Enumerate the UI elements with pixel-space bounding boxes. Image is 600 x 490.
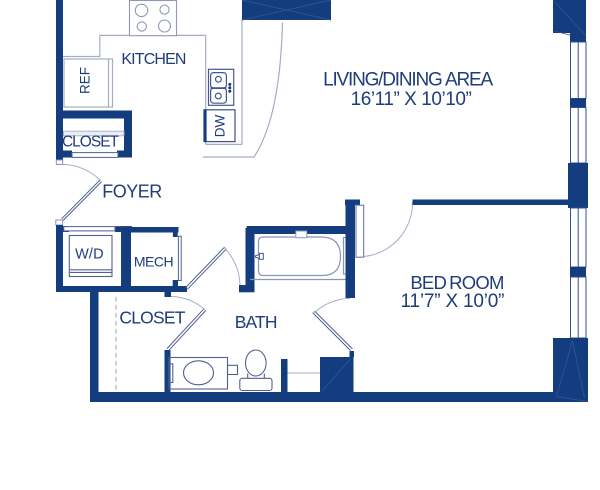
svg-text:DW: DW (213, 115, 228, 138)
svg-text:REF: REF (78, 67, 93, 94)
svg-text:CLOSET: CLOSET (119, 307, 185, 327)
svg-text:BATH: BATH (235, 312, 277, 332)
svg-text:16’11” X 10’10”: 16’11” X 10’10” (351, 89, 472, 110)
svg-text:W/D: W/D (75, 246, 104, 262)
svg-text:11’7” X 10’0”: 11’7” X 10’0” (401, 291, 505, 312)
svg-text:LIVING/DINING AREA: LIVING/DINING AREA (323, 70, 493, 91)
svg-text:KITCHEN: KITCHEN (121, 51, 186, 68)
svg-text:MECH: MECH (134, 254, 173, 270)
svg-text:CLOSET: CLOSET (62, 134, 120, 151)
svg-text:BED ROOM: BED ROOM (410, 272, 503, 293)
svg-text:FOYER: FOYER (102, 181, 162, 201)
